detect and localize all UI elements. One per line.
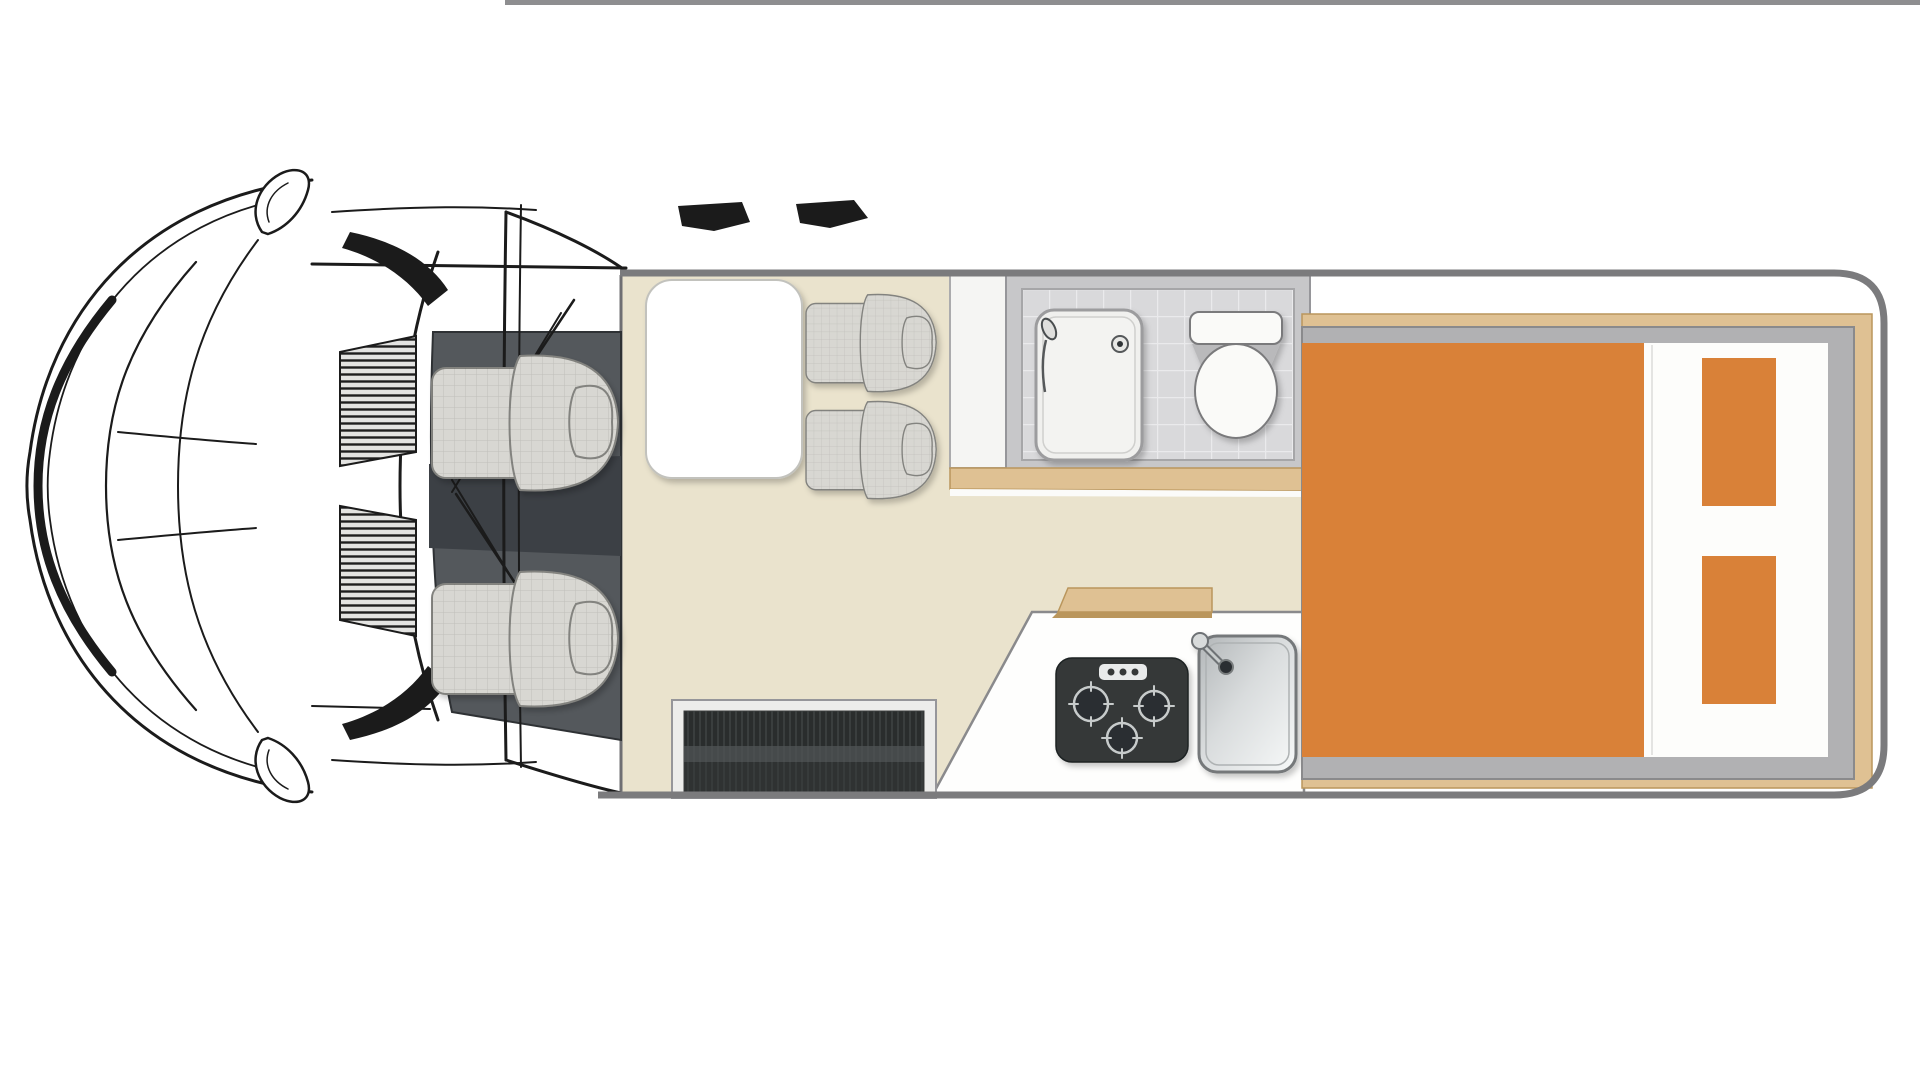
bathroom [1006,275,1310,470]
toilet-bowl [1195,344,1277,438]
side-mirror-bottom [256,738,309,802]
toilet-cistern [1190,312,1282,344]
overhead-locker-front [1052,612,1212,618]
rear-bed [1302,314,1872,788]
shower-drain-icon [1112,336,1128,352]
dinette-table [646,280,802,478]
dinette-seat-1 [806,295,936,392]
hob-knob-3 [1132,669,1139,676]
bed-pillow-2 [1702,556,1776,704]
hood-vent-2 [340,506,416,636]
motorhome-floorplan [0,0,1920,1071]
page-top-rule [505,0,1920,5]
bathroom-base-trim [950,468,1316,491]
overhead-locker [1058,588,1212,612]
dinette-seat-2 [806,402,936,499]
sink-drain-icon [1219,660,1233,674]
bed-pillow-1 [1702,358,1776,506]
hood-vent-1 [340,336,416,466]
shower-tray [1036,310,1142,460]
hob-knob-1 [1108,669,1115,676]
floorplan-page [0,0,1920,1071]
hob-knob-2 [1120,669,1127,676]
kitchen-sink [1192,633,1296,772]
entry-step [672,700,936,798]
roof-detail-2 [796,200,868,228]
side-mirror-top [256,170,309,234]
toilet [1190,312,1282,438]
hob [1056,658,1188,762]
cab-seat-passenger [432,572,618,707]
wardrobe-divider-panel [950,275,1006,468]
roof-detail-1 [678,202,750,231]
bed-mattress [1302,343,1644,757]
cab-seat-driver [432,356,618,491]
